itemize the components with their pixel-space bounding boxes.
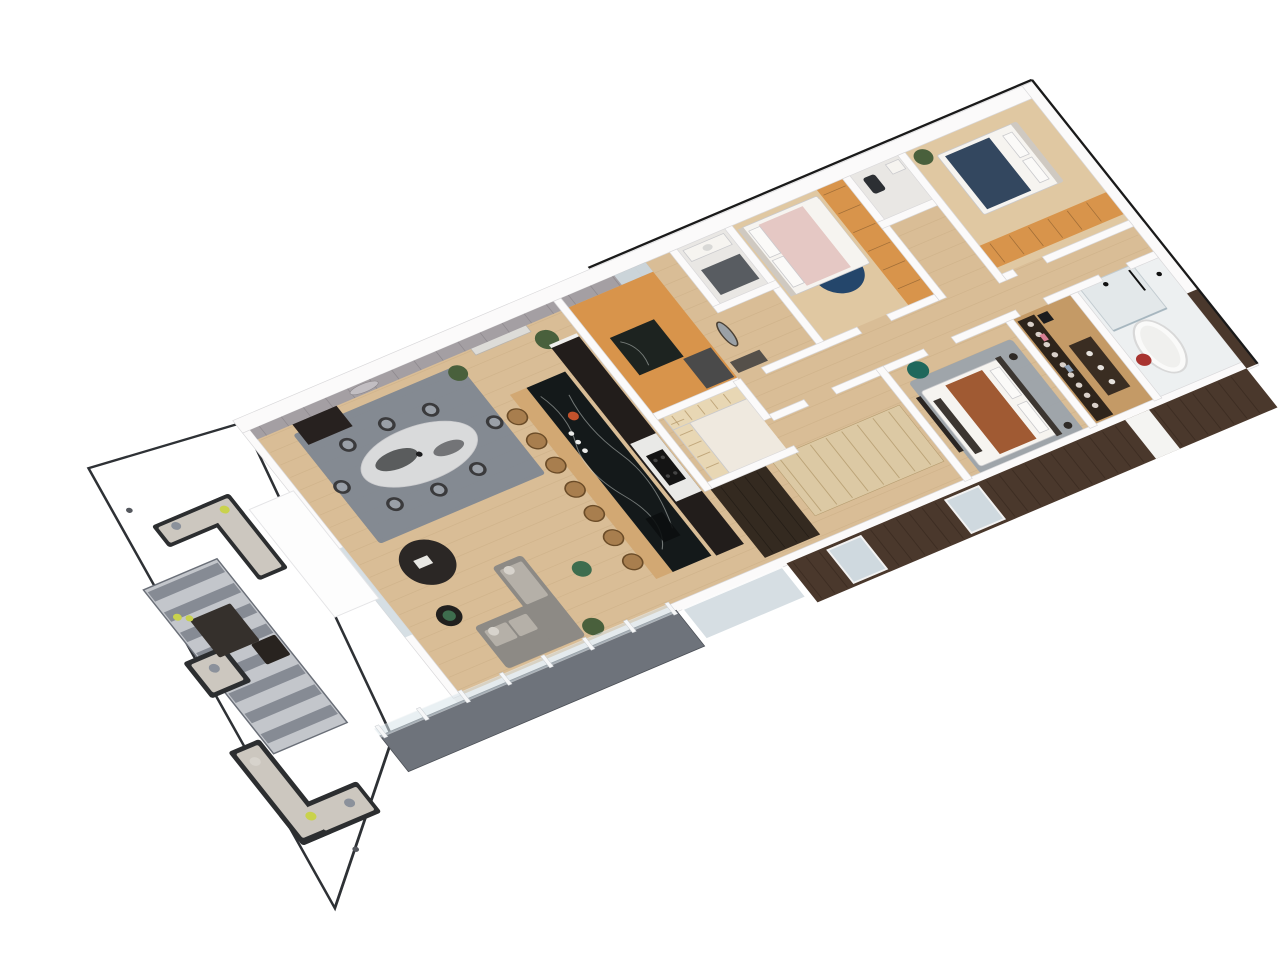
- floorplan-render: [0, 0, 1280, 960]
- floorplan-screenshot: [0, 0, 1280, 960]
